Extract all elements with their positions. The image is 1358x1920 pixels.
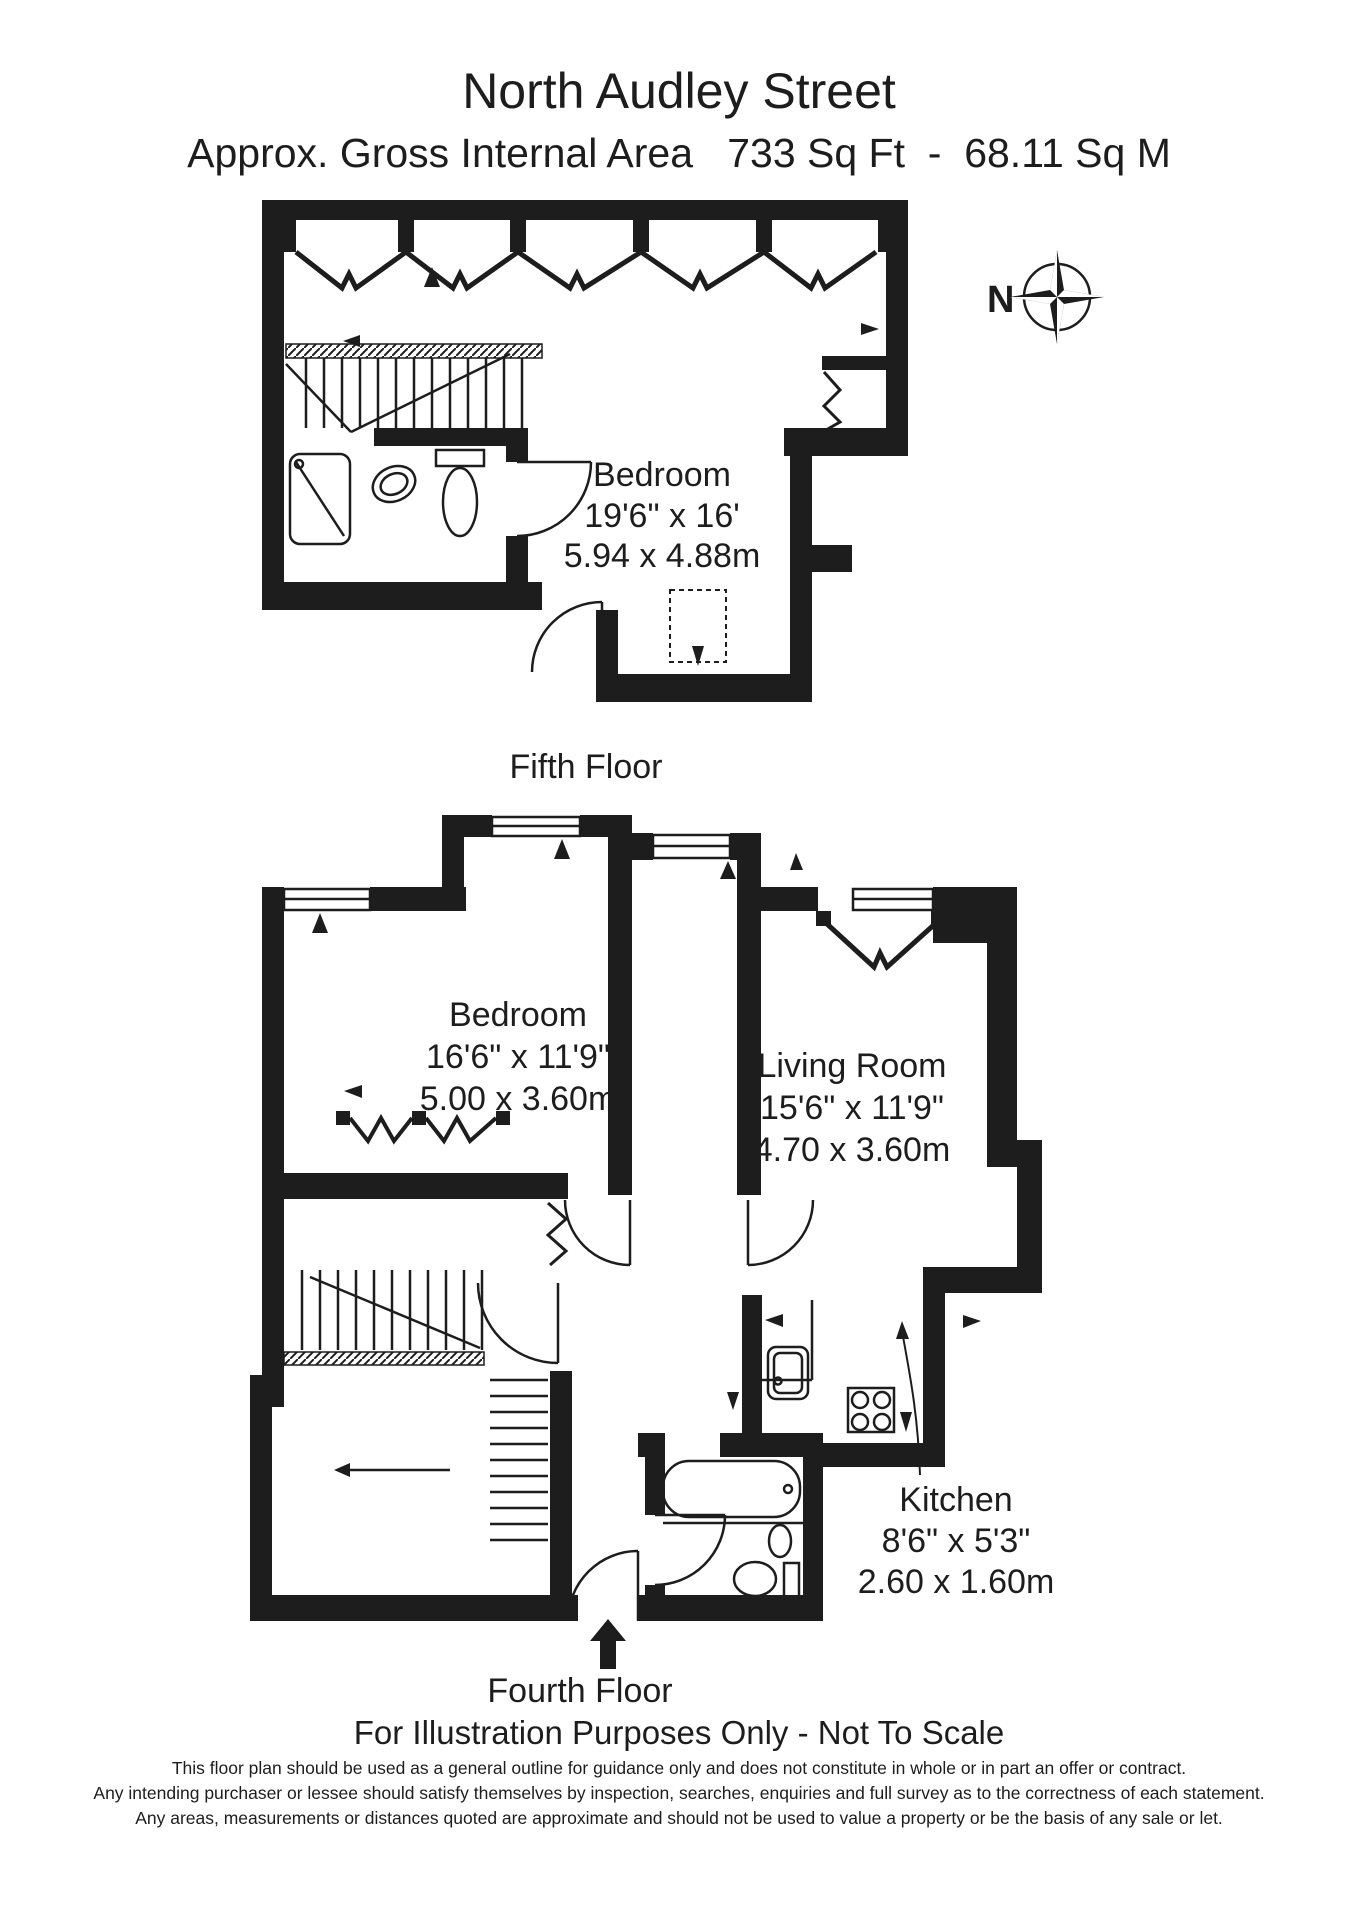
fourth-floor-label: Fourth Floor xyxy=(250,1672,910,1711)
bay-window xyxy=(816,911,946,967)
kitchen-sink xyxy=(768,1347,808,1399)
disclaimer-line: This floor plan should be used as a gene… xyxy=(0,1756,1358,1781)
counter xyxy=(762,1300,812,1380)
room-dim-metric: 5.00 x 3.60m xyxy=(420,1080,617,1118)
room-dim-metric: 4.70 x 3.60m xyxy=(754,1131,951,1169)
entry-arrow-icon xyxy=(590,1619,626,1669)
page-subtitle: Approx. Gross Internal Area 733 Sq Ft - … xyxy=(0,130,1358,177)
sink xyxy=(769,1525,791,1557)
disclaimer-line: Any areas, measurements or distances quo… xyxy=(0,1806,1358,1831)
stairs xyxy=(284,1270,548,1540)
room-label-living-room: Living Room xyxy=(758,1047,947,1085)
closet-door xyxy=(548,1203,566,1265)
room-label-bedroom4: Bedroom xyxy=(449,996,587,1034)
room-label-bedroom5: Bedroom xyxy=(593,456,731,494)
page-title: North Audley Street xyxy=(0,62,1358,120)
hob xyxy=(848,1388,894,1432)
fourth-floor-plan: Bedroom 16'6" x 11'9" 5.00 x 3.60m Livin… xyxy=(250,815,1070,1675)
room-dim-imperial: 16'6" x 11'9" xyxy=(426,1038,610,1076)
fifth-floor-walls xyxy=(262,200,908,702)
toilet xyxy=(436,450,484,536)
room-dim-imperial: 8'6" x 5'3" xyxy=(882,1522,1031,1560)
compass-north-label: N xyxy=(987,279,1014,321)
room-dim-metric: 2.60 x 1.60m xyxy=(858,1563,1055,1601)
room-label-kitchen: Kitchen xyxy=(899,1481,1012,1519)
shower xyxy=(290,454,350,544)
floorplan-page: North Audley Street Approx. Gross Intern… xyxy=(0,0,1358,1920)
toilet xyxy=(734,1562,799,1597)
sink xyxy=(367,459,421,508)
closet-door xyxy=(824,372,840,430)
compass-icon: N xyxy=(985,243,1115,353)
bathtub xyxy=(663,1461,803,1523)
disclaimer: This floor plan should be used as a gene… xyxy=(0,1756,1358,1831)
not-to-scale-note: For Illustration Purposes Only - Not To … xyxy=(0,1714,1358,1752)
fifth-floor-plan: Bedroom 19'6" x 16' 5.94 x 4.88m xyxy=(256,196,921,761)
room-dim-metric: 5.94 x 4.88m xyxy=(564,537,761,575)
room-dim-imperial: 19'6" x 16' xyxy=(584,497,740,535)
room-dim-imperial: 15'6" x 11'9" xyxy=(760,1089,944,1127)
fifth-floor-label: Fifth Floor xyxy=(256,748,916,787)
disclaimer-line: Any intending purchaser or lessee should… xyxy=(0,1781,1358,1806)
stairs xyxy=(286,344,542,432)
window xyxy=(296,252,876,288)
door-arc xyxy=(478,1200,813,1621)
